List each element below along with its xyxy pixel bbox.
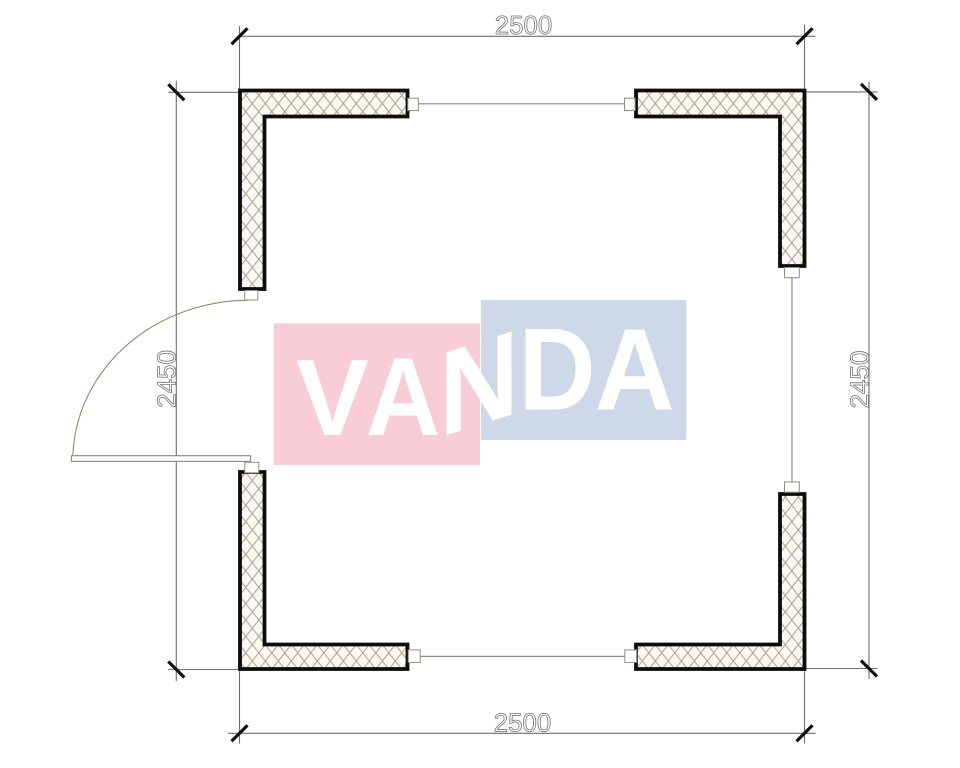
svg-text:2450: 2450 xyxy=(152,350,182,408)
svg-text:D: D xyxy=(519,304,596,435)
svg-text:A: A xyxy=(595,305,675,435)
svg-text:A: A xyxy=(366,334,440,458)
svg-text:2500: 2500 xyxy=(494,710,551,738)
svg-text:2450: 2450 xyxy=(845,351,875,409)
svg-text:V: V xyxy=(296,337,369,459)
svg-text:N: N xyxy=(439,304,519,464)
svg-text:2500: 2500 xyxy=(495,12,552,40)
